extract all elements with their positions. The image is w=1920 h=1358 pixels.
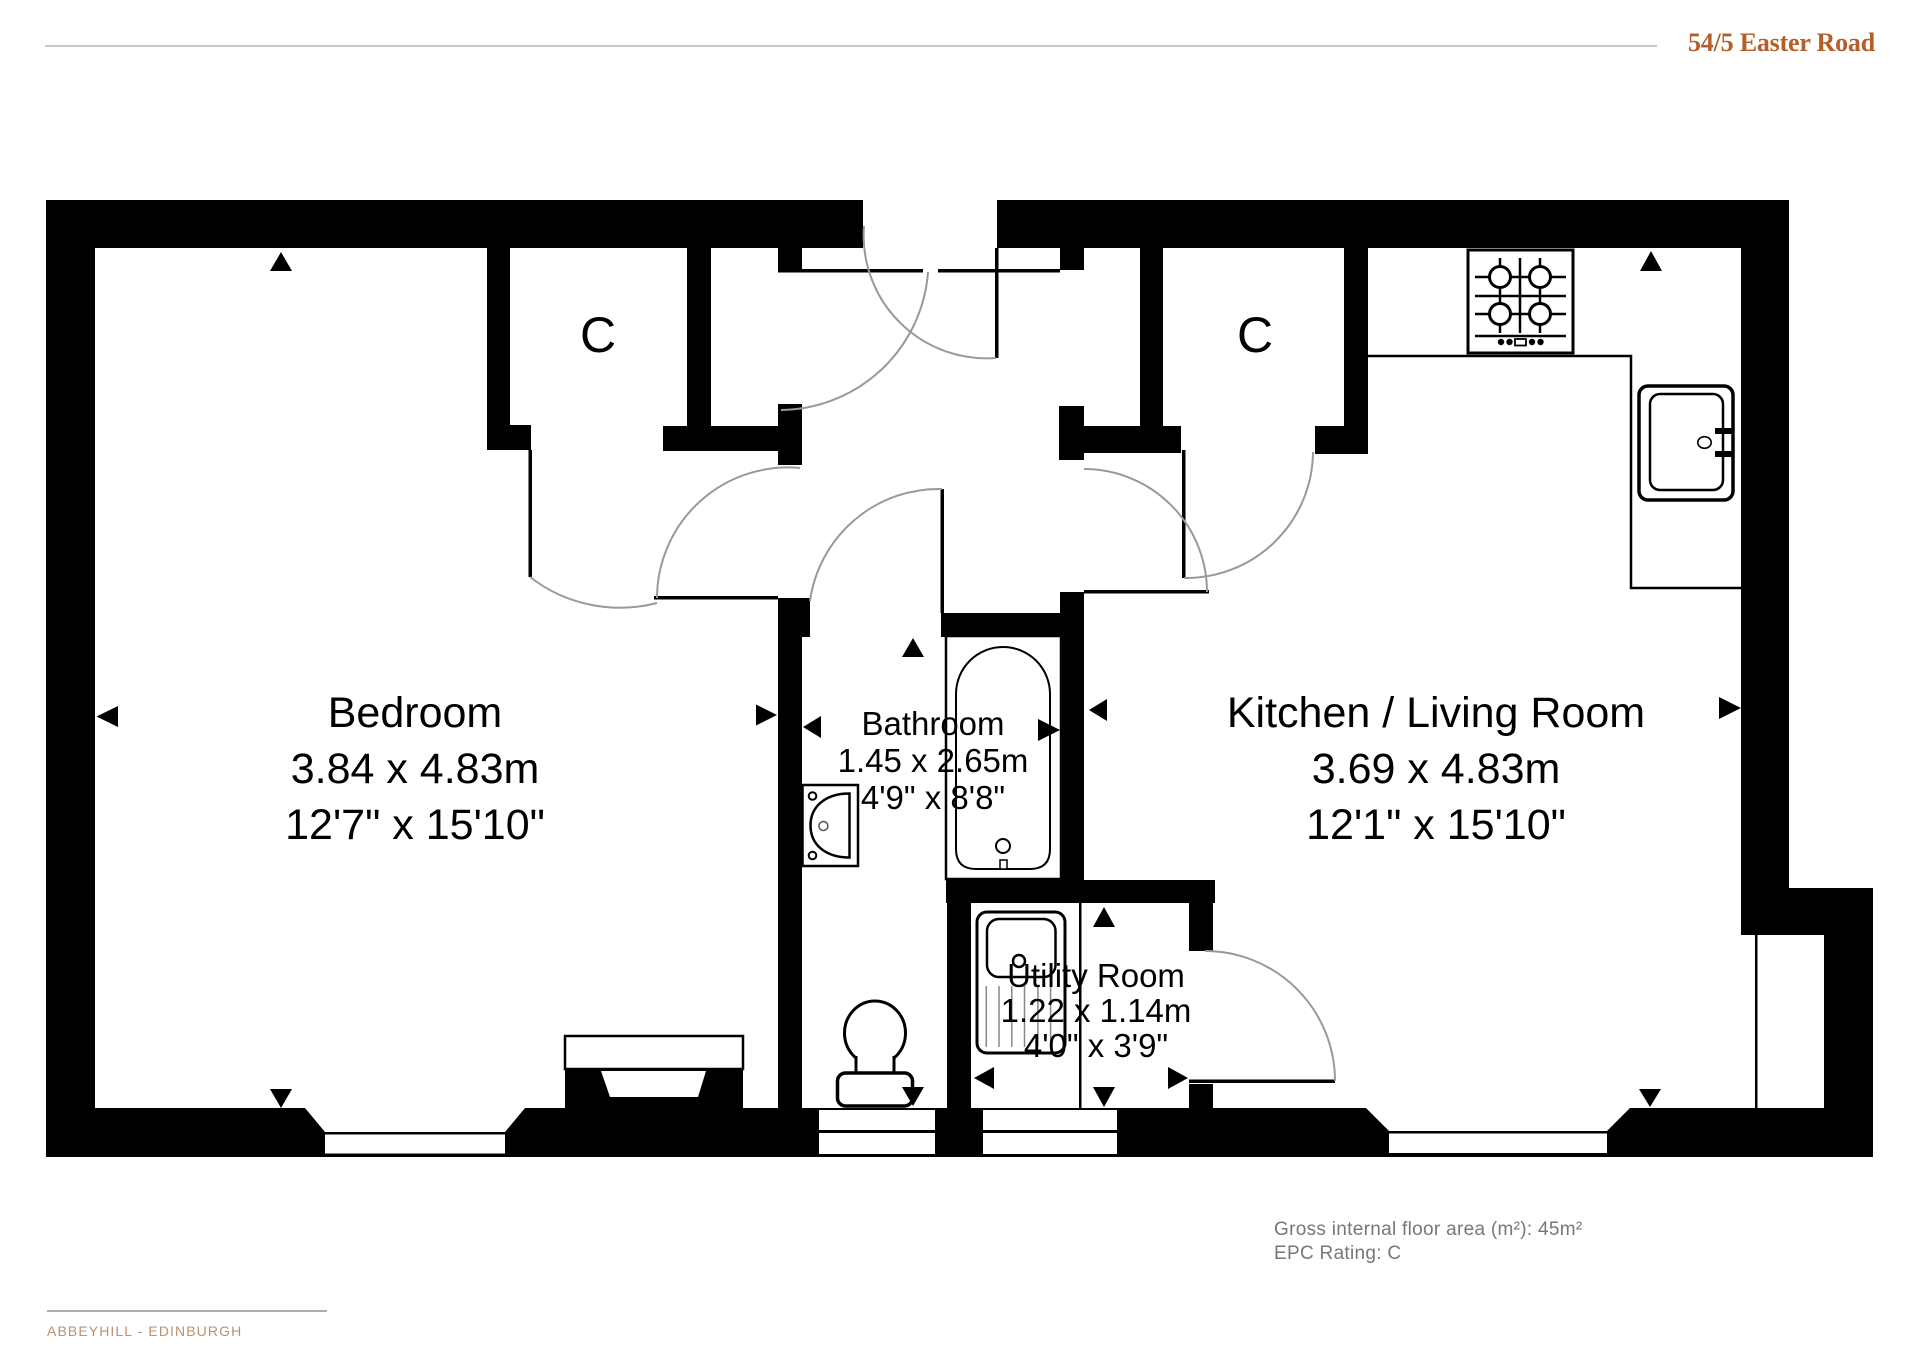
- svg-text:12'7" x 15'10": 12'7" x 15'10": [285, 801, 545, 849]
- svg-text:3.69 x 4.83m: 3.69 x 4.83m: [1312, 745, 1561, 793]
- svg-text:3.84 x 4.83m: 3.84 x 4.83m: [291, 745, 540, 793]
- svg-text:ABBEYHILL - EDINBURGH: ABBEYHILL - EDINBURGH: [47, 1323, 242, 1339]
- svg-text:4'9" x 8'8": 4'9" x 8'8": [861, 779, 1005, 816]
- svg-text:54/5 Easter Road: 54/5 Easter Road: [1688, 28, 1876, 57]
- svg-text:Bedroom: Bedroom: [328, 689, 502, 737]
- svg-text:12'1" x 15'10": 12'1" x 15'10": [1306, 801, 1566, 849]
- svg-text:1.22 x 1.14m: 1.22 x 1.14m: [1001, 992, 1192, 1029]
- svg-text:1.45 x 2.65m: 1.45 x 2.65m: [838, 742, 1029, 779]
- svg-text:Kitchen / Living Room: Kitchen / Living Room: [1227, 689, 1645, 737]
- svg-text:C: C: [580, 307, 616, 363]
- svg-text:C: C: [1237, 307, 1273, 363]
- svg-text:Bathroom: Bathroom: [861, 705, 1004, 742]
- svg-text:EPC Rating: C: EPC Rating: C: [1274, 1243, 1401, 1264]
- svg-text:Gross internal floor area (m²): Gross internal floor area (m²): 45m²: [1274, 1219, 1583, 1240]
- svg-text:4'0" x 3'9": 4'0" x 3'9": [1024, 1027, 1168, 1064]
- svg-text:Utility Room: Utility Room: [1007, 957, 1185, 994]
